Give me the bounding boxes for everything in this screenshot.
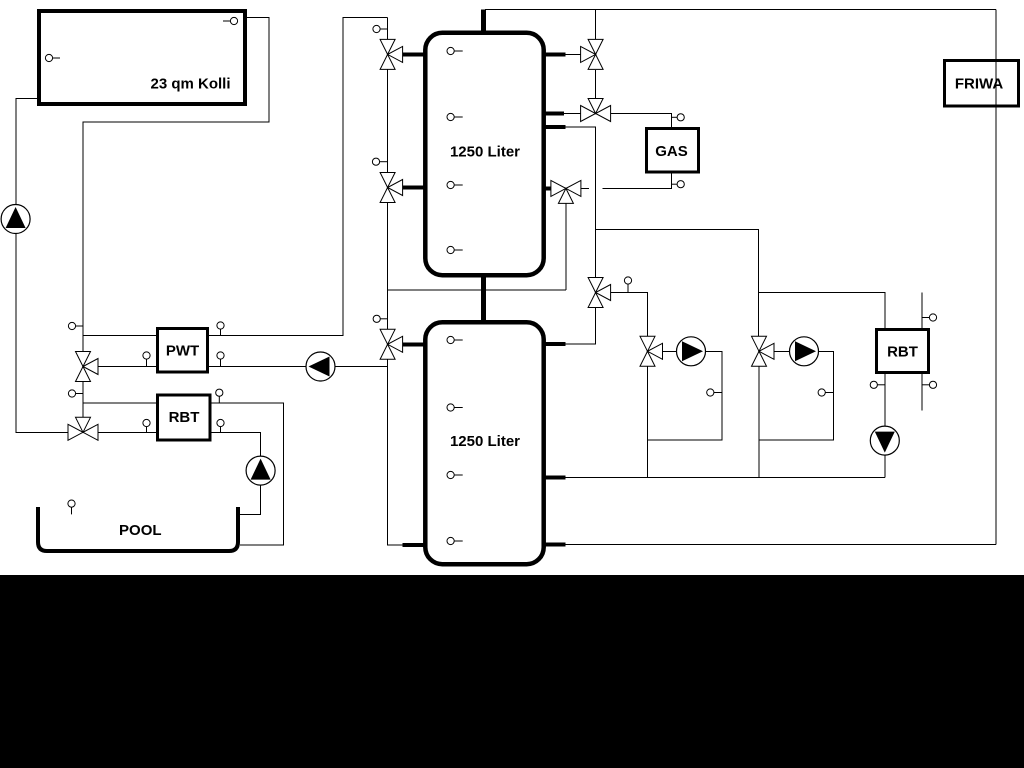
svg-text:RBT: RBT [169,409,200,426]
svg-text:FRIWA: FRIWA [955,76,1003,93]
svg-text:1250 Liter: 1250 Liter [450,433,520,450]
svg-text:PWT: PWT [166,343,199,360]
svg-text:POOL: POOL [119,522,162,539]
svg-text:1250 Liter: 1250 Liter [450,144,520,161]
svg-text:RBT: RBT [887,344,918,361]
svg-text:23 qm Kolli: 23 qm Kolli [150,76,230,93]
svg-text:GAS: GAS [655,143,688,160]
